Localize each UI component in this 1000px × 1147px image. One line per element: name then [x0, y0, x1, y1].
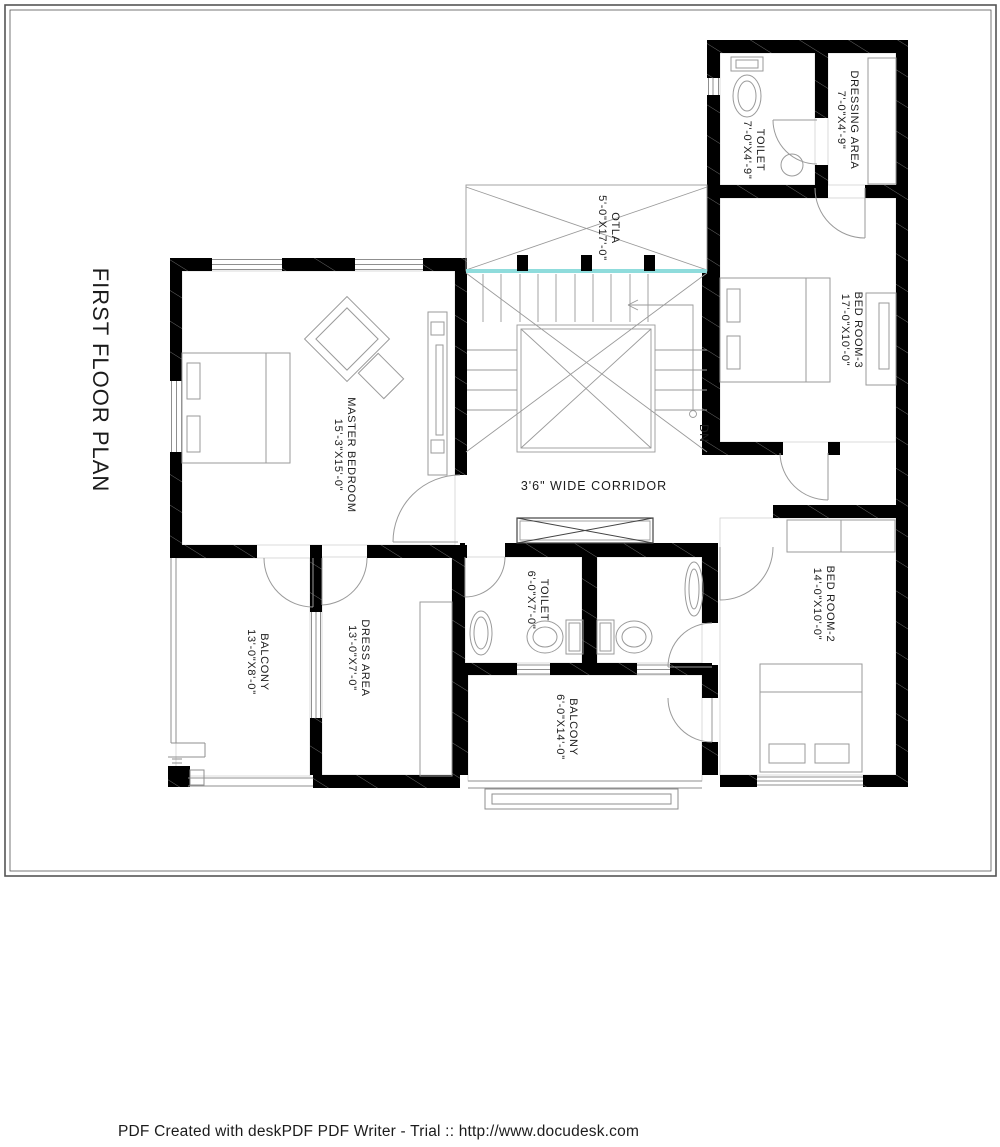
bed-icon-master [182, 353, 290, 463]
door-toilet-top [773, 120, 817, 164]
bed-icon-bedroom3 [720, 278, 830, 382]
svg-text:OTLA: OTLA [609, 212, 621, 244]
svg-text:BALCONY: BALCONY [567, 698, 579, 755]
svg-text:BALCONY: BALCONY [258, 633, 270, 690]
toilet-icon-top [731, 57, 763, 117]
svg-text:13'-0"X7'-0": 13'-0"X7'-0" [346, 625, 358, 691]
label-bed-room-3: BED ROOM-3 17'-0"X10'-0" [839, 292, 864, 369]
svg-text:TOILET: TOILET [754, 129, 766, 172]
label-balcony-left: BALCONY 13'-0"X8'-0" [245, 629, 270, 695]
svg-text:17'-0"X10'-0": 17'-0"X10'-0" [839, 294, 851, 366]
label-toilet-top: TOILET 7'-0"X4'-9" [741, 121, 766, 180]
svg-text:TOILET: TOILET [538, 579, 550, 622]
wardrobe-icon-bedroom3 [866, 293, 896, 385]
window-master-top-2 [355, 260, 423, 270]
label-bed-room-2: BED ROOM-2 14'-0"X10'-0" [811, 566, 836, 643]
svg-text:14'-0"X10'-0": 14'-0"X10'-0" [811, 568, 823, 640]
room-labels: TOILET 7'-0"X4'-9" DRESSING AREA 7'-0"X4… [245, 71, 864, 760]
label-dressing-area: DRESSING AREA 7'-0"X4'-9" [835, 71, 860, 170]
window-toilet-top-left [709, 78, 719, 95]
svg-text:15'-3"X15'-0": 15'-3"X15'-0" [332, 419, 344, 491]
sink-icon-right [685, 562, 703, 616]
planter-box [485, 789, 678, 809]
column [517, 255, 528, 271]
column [581, 255, 592, 271]
svg-text:DN: DN [697, 424, 711, 442]
furniture [182, 57, 896, 776]
window-dress-divider [312, 612, 321, 718]
bed-icon-bedroom2 [760, 664, 862, 772]
door-corridor-toilet [465, 557, 505, 597]
svg-text:5'-0"X17'-0": 5'-0"X17'-0" [596, 195, 608, 261]
threshold-toilet-right [637, 665, 670, 674]
page-title-text: FIRST FLOOR PLAN [88, 268, 113, 493]
parapet-balcony-left-bottom [188, 778, 313, 786]
column [644, 255, 655, 271]
svg-text:6'-0"X7'-0": 6'-0"X7'-0" [525, 571, 537, 630]
label-dress-area: DRESS AREA 13'-0"X7'-0" [346, 619, 371, 696]
stair-down-label: DN [697, 424, 711, 442]
svg-text:DRESSING AREA: DRESSING AREA [848, 71, 860, 170]
toilet-icon-right [597, 620, 652, 654]
wardrobe-icon-dress-area [420, 602, 452, 776]
door-vestibule-bedroom2 [720, 547, 773, 600]
wardrobe-icon-dressing [868, 58, 896, 184]
parapet-balcony-mid-bottom [468, 781, 702, 788]
room-interior-outlines [176, 53, 896, 781]
door-bedroom2-balcony [668, 698, 712, 742]
otla-area [466, 185, 707, 273]
svg-text:7'-0"X4'-9": 7'-0"X4'-9" [741, 121, 753, 180]
svg-text:DRESS AREA: DRESS AREA [359, 619, 371, 696]
floor-plan-canvas: FIRST FLOOR PLAN [0, 0, 1000, 1147]
svg-text:BED ROOM-3: BED ROOM-3 [852, 292, 864, 369]
label-corridor: 3'6" WIDE CORRIDOR [521, 479, 667, 493]
wardrobe-icon-bedroom2 [787, 520, 895, 552]
svg-text:BED ROOM-2: BED ROOM-2 [824, 566, 836, 643]
svg-text:7'-0"X4'-9": 7'-0"X4'-9" [835, 91, 847, 150]
wardrobe-icon-master [428, 312, 447, 475]
window-master-top-1 [212, 260, 282, 270]
pdf-watermark: PDF Created with deskPDF PDF Writer - Tr… [118, 1123, 639, 1140]
stair-direction-arrow [628, 300, 697, 418]
label-balcony-mid: BALCONY 6'-0"X14'-0" [554, 694, 579, 760]
threshold-toilet-left [517, 665, 550, 674]
parapet-balcony-left-side [171, 558, 176, 743]
window-bedroom2-bottom [757, 777, 863, 785]
sink-icon-left [470, 611, 492, 655]
door-corridor-master [393, 475, 460, 542]
parapet-step [168, 743, 205, 757]
basin-icon-top [781, 154, 803, 176]
door-master-balcony [264, 558, 313, 607]
door-master-dress [322, 558, 367, 605]
svg-text:13'-0"X8'-0": 13'-0"X8'-0" [245, 629, 257, 695]
label-master-bedroom: MASTER BEDROOM 15'-3"X15'-0" [332, 397, 357, 513]
label-toilet-mid: TOILET 6'-0"X7'-0" [525, 571, 550, 630]
label-otla: OTLA 5'-0"X17'-0" [596, 195, 621, 261]
door-bedroom2-toilet [668, 623, 712, 667]
walls [168, 40, 908, 788]
page-title: FIRST FLOOR PLAN [88, 268, 113, 493]
door-corridor-bedroom3 [780, 453, 828, 500]
svg-text:MASTER BEDROOM: MASTER BEDROOM [345, 397, 357, 513]
chair-icon-master [305, 297, 404, 399]
corridor-cupboard [517, 518, 653, 543]
staircase: DN [466, 273, 711, 452]
svg-text:6'-0"X14'-0": 6'-0"X14'-0" [554, 694, 566, 760]
window-master-left [172, 381, 182, 452]
